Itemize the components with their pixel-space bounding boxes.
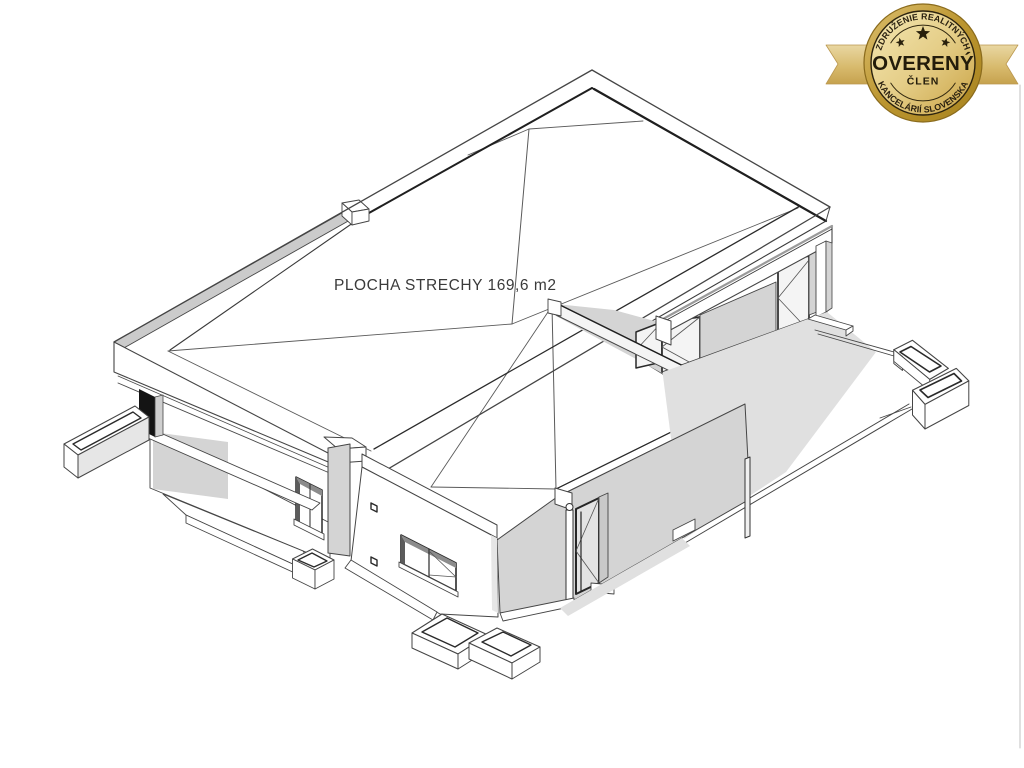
svg-text:PLOCHA STRECHY 169,6 m2: PLOCHA STRECHY 169,6 m2 bbox=[334, 277, 557, 294]
svg-text:OVERENÝ: OVERENÝ bbox=[872, 51, 974, 75]
svg-text:ČLEN: ČLEN bbox=[907, 75, 940, 88]
